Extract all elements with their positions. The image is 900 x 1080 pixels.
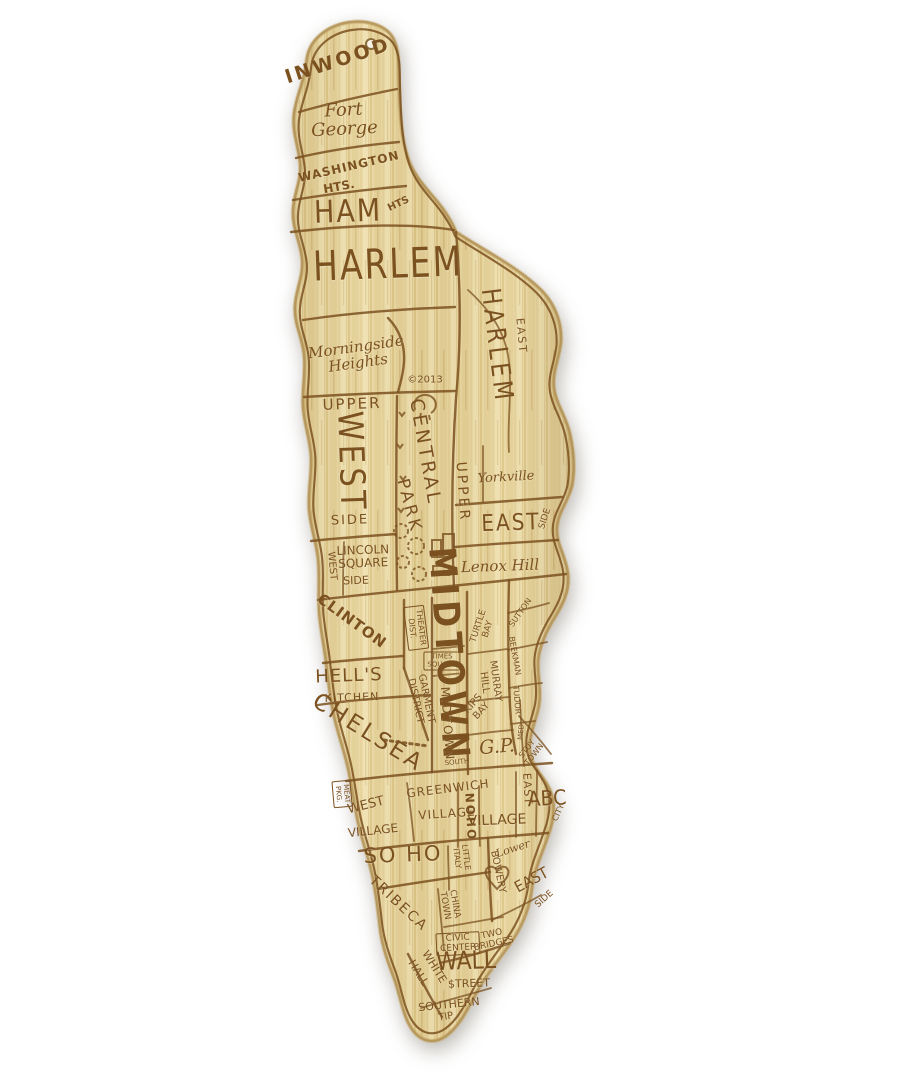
label-washington: WASHINGTON: [297, 149, 401, 185]
label-upper-west-upper: UPPER: [322, 395, 382, 413]
label-harlem: HARLEM: [312, 239, 463, 289]
label-alphabet-city-abc: ABC: [527, 787, 567, 812]
label-east-harlem-east: EAST: [514, 317, 529, 354]
label-copyright: ©2013: [407, 376, 442, 387]
label-soho: SO HO: [363, 842, 443, 867]
label-east-harlem: HARLEM: [475, 287, 517, 406]
label-fort-george: Fort George: [310, 99, 379, 141]
label-lower-east-side: SIDE: [534, 889, 556, 910]
label-lower: Lower: [494, 838, 531, 860]
label-tribeca: TRIBECA: [366, 873, 431, 935]
label-two-bridges: TWO BRIDGES: [471, 926, 515, 953]
label-noho: NOHO: [462, 792, 477, 841]
label-stuy-town: STUY TOWN: [516, 737, 545, 767]
label-southern-tip-tip: TIP: [438, 1011, 455, 1024]
label-wall: WALL: [435, 947, 496, 976]
label-midtown-south-south: SOUTH: [444, 758, 469, 768]
label-morningside-heights: Morningside Heights: [307, 332, 407, 377]
label-tudor: TUDOR: [510, 685, 521, 714]
label-theater-district: THEATER DIST.: [403, 605, 429, 652]
label-yorkville: Yorkville: [477, 470, 535, 487]
label-lower-east: EAST: [512, 865, 551, 897]
label-murray-hill: MURRAY HILL: [475, 660, 502, 704]
label-gramercy-park: G.P.: [478, 735, 515, 759]
label-west-village-west: WEST: [346, 795, 386, 818]
label-white-hall-hall: HALL: [406, 958, 431, 988]
label-west-village-village: VILLAGE: [347, 822, 398, 840]
label-east-village-village: VILLAGE: [467, 812, 526, 829]
label-greenwich-village: VILLAGE: [418, 806, 476, 823]
label-garment-district: GARMENT DISTRICT: [404, 673, 436, 726]
label-midtown-south-midtown: MIDTOWN: [438, 686, 456, 761]
label-chelsea: CHELSEA: [308, 689, 429, 777]
label-midtown: MIDTOWN: [422, 546, 477, 765]
label-meatpacking: MEAT PKG.: [331, 780, 352, 809]
label-hells: HELL'S: [315, 665, 383, 687]
product-photo-manhattan-cutting-board: INWOODFort GeorgeWASHINGTONHTS.HAMHTSHAR…: [0, 0, 900, 1080]
label-white-hall-white: WHITE: [419, 949, 448, 986]
label-southern-tip: SOUTHERN: [418, 996, 480, 1014]
label-west-side-side: SIDE: [343, 575, 369, 588]
label-washington-hts: HTS.: [322, 178, 355, 196]
label-wall-street: $TREET: [448, 977, 490, 990]
label-hamilton: HAM: [313, 194, 382, 230]
label-turtle-bay: TURTLE BAY: [470, 609, 499, 647]
label-beekman: BEEKMAN: [506, 636, 521, 676]
label-upper-east-east: EAST: [481, 510, 541, 537]
label-civic-center: CIVIC CENTER: [435, 931, 480, 957]
label-lenox-hill: Lenox Hill: [461, 557, 540, 576]
label-sutton: SUTTON: [508, 597, 534, 629]
label-lincoln-square: LINCOLN SQUARE: [336, 543, 390, 571]
label-chinatown: CHINA TOWN: [437, 889, 461, 921]
label-alphabet-city-city: CITY: [551, 803, 566, 823]
label-hells-kitchen: KITCHEN: [324, 691, 379, 705]
label-hamilton-hts: HTS: [387, 195, 412, 214]
label-little-italy: LITTLE ITALY: [451, 844, 471, 872]
labels-layer: INWOODFort GeorgeWASHINGTONHTS.HAMHTSHAR…: [0, 0, 900, 1080]
label-upper-east-side: SIDE: [538, 508, 554, 531]
label-times-square: TIMES SQUARE: [423, 651, 460, 670]
label-greenwich: GREENWICH: [406, 777, 491, 800]
label-clinton: CLINTON: [314, 591, 389, 652]
label-bowery: BOWERY: [487, 850, 507, 894]
label-central-park-park: PARK: [393, 477, 425, 536]
label-east-village-east: EAST: [520, 773, 534, 806]
label-upper-west-west: WEST: [330, 410, 371, 513]
label-upper-west-side: SIDE: [331, 513, 370, 528]
label-upper-east-upper: UPPER: [452, 461, 471, 523]
label-med: MED.: [517, 722, 526, 741]
label-inwood: INWOOD: [283, 34, 394, 88]
label-central-park-central: CENTRAL: [406, 397, 445, 507]
label-kips-bay: KIPS BAY: [463, 693, 494, 724]
label-west-side-west: WEST: [324, 551, 337, 581]
